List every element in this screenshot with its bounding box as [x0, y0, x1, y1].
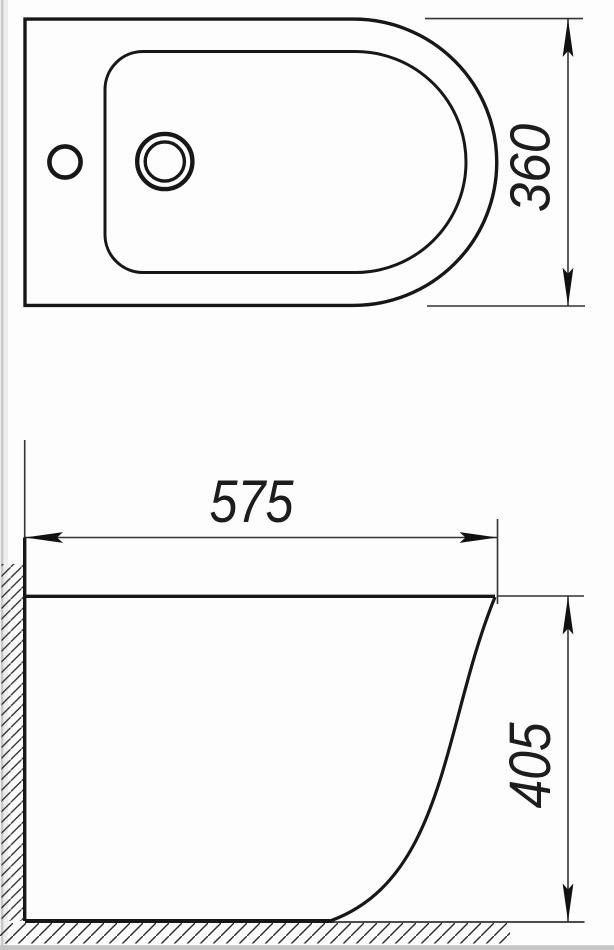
svg-text:575: 575	[209, 468, 293, 535]
svg-text:405: 405	[497, 722, 562, 809]
svg-text:360: 360	[498, 123, 562, 212]
